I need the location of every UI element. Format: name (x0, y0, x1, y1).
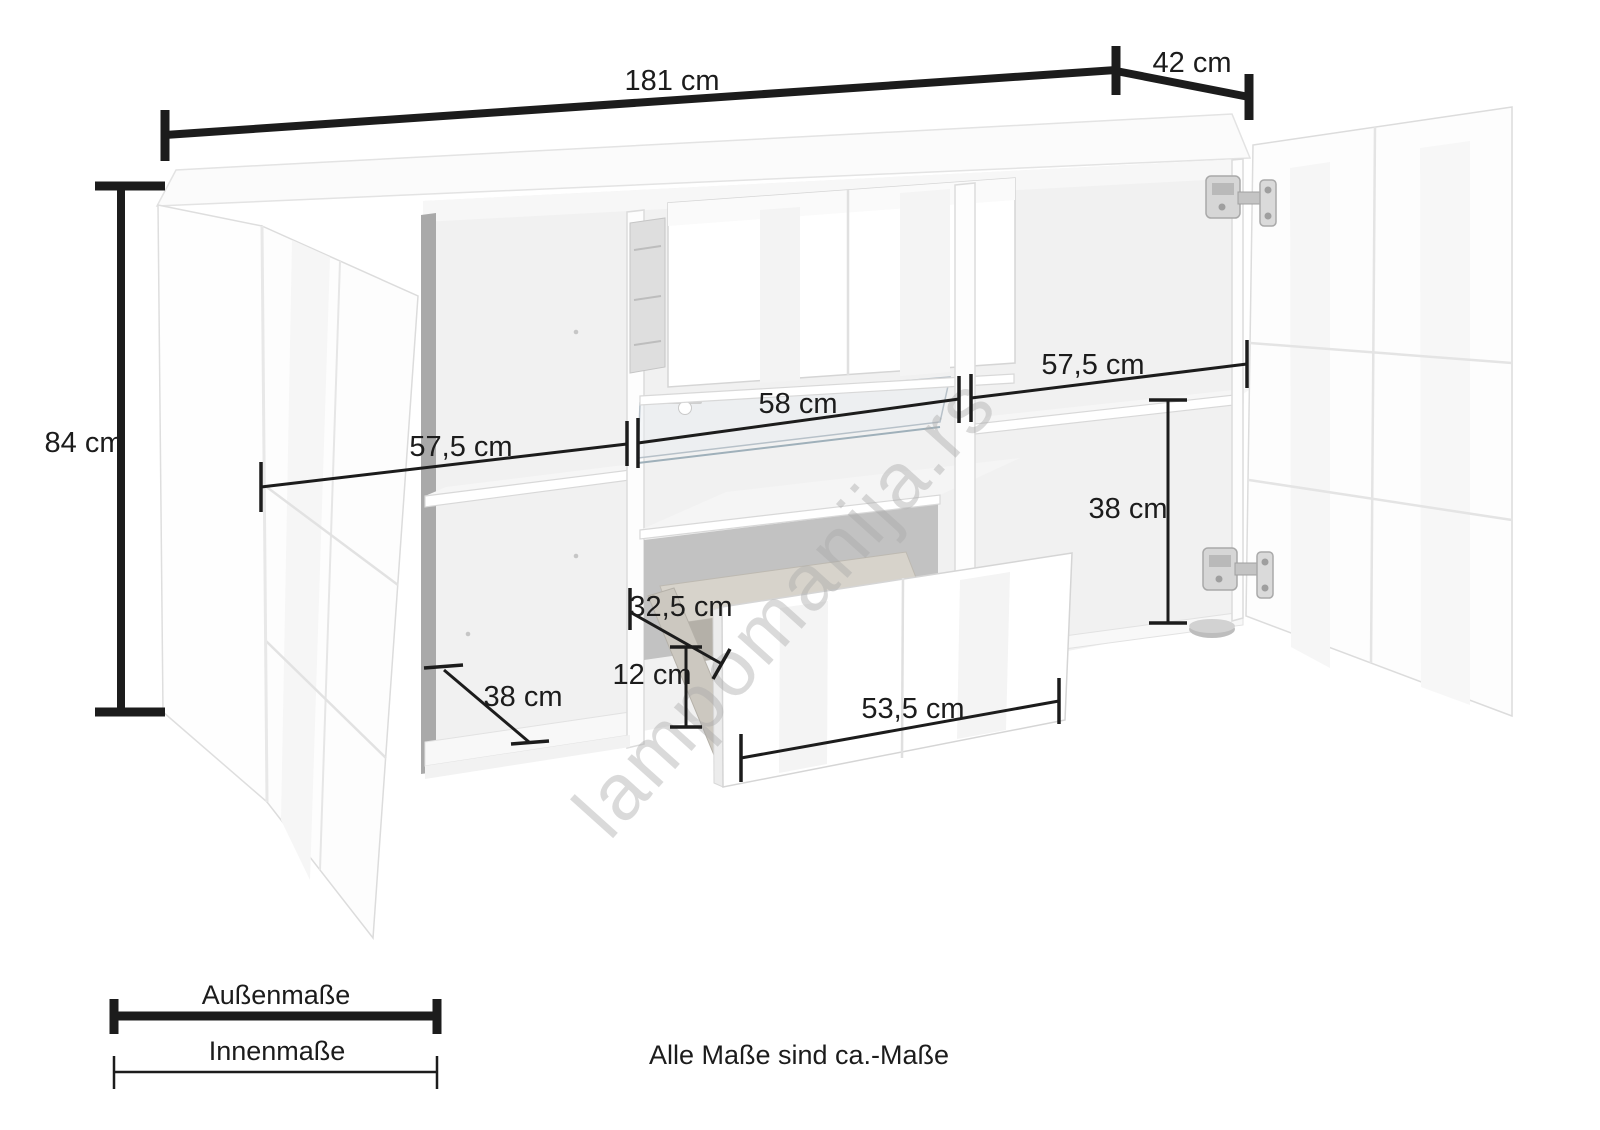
dim-right-inner-height-label: 38 cm (1089, 493, 1168, 525)
dim-drawer-inner-height-label: 12 cm (613, 659, 692, 691)
dim-total-height-label: 84 cm (45, 427, 124, 459)
measurement-note: Alle Maße sind ca.-Maße (649, 1040, 949, 1070)
legend-outer: Außenmaße (114, 980, 437, 1034)
dim-left-inner-width-label: 57,5 cm (409, 431, 512, 463)
drawer-slide-rail (630, 218, 665, 373)
right-door-open (1246, 107, 1512, 716)
dim-total-depth-label: 42 cm (1153, 47, 1232, 79)
left-door-open (158, 205, 418, 938)
dim-total-width-label: 181 cm (624, 65, 719, 97)
dim-total-depth: 42 cm (1116, 47, 1249, 120)
dim-center-inner-width-label: 58 cm (759, 388, 838, 420)
dim-total-height: 84 cm (45, 186, 165, 712)
dimension-diagram: lampomanija.rs 181 cm 42 cm 84 cm (0, 0, 1600, 1130)
legend: Außenmaße Innenmaße (114, 980, 437, 1089)
legend-inner: Innenmaße (114, 1036, 437, 1089)
legend-inner-label: Innenmaße (209, 1036, 346, 1066)
dim-right-inner-width-label: 57,5 cm (1041, 349, 1144, 381)
dim-left-inner-depth-label: 38 cm (484, 681, 563, 713)
legend-outer-label: Außenmaße (202, 980, 351, 1010)
cabinet-foot (1189, 619, 1235, 638)
dim-drawer-front-width-label: 53,5 cm (861, 693, 964, 725)
dim-drawer-inner-depth-label: 32,5 cm (629, 591, 732, 623)
